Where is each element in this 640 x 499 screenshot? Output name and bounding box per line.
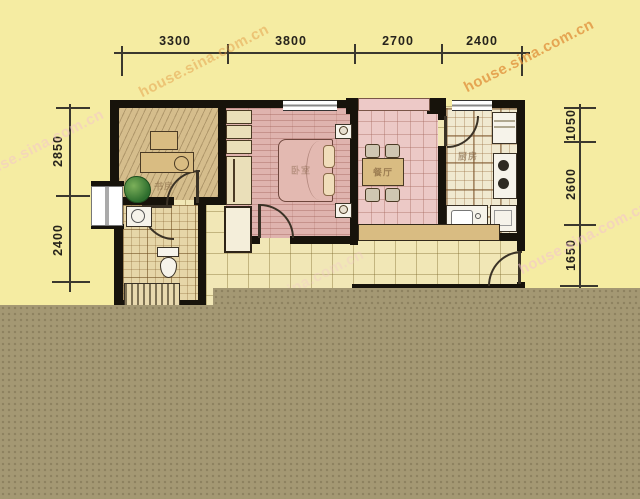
room-label-study: 书房	[154, 180, 174, 193]
watermark: house.sina.com.cn	[0, 106, 107, 186]
shelf	[226, 140, 252, 154]
stove-burner	[498, 160, 509, 171]
watermark: house.sina.com.cn	[461, 16, 597, 96]
left-bay-window	[91, 186, 123, 226]
wardrobe	[226, 156, 252, 205]
dimension-label-top-1: 3300	[159, 34, 191, 48]
bedroom-window	[283, 100, 337, 111]
kitchen-door-leaf	[444, 116, 447, 146]
wall	[218, 100, 226, 204]
shelf	[226, 110, 252, 124]
wall	[350, 100, 358, 245]
dimension-tick	[560, 285, 598, 287]
dining-chair	[385, 144, 400, 158]
sideboard	[358, 224, 500, 241]
wall	[198, 205, 206, 306]
dimension-tick	[564, 141, 596, 143]
wardrobe-handle	[233, 159, 235, 202]
dimension-tick	[354, 44, 356, 64]
hall-cabinet	[224, 206, 252, 253]
study-door-leaf	[196, 170, 199, 203]
stove-burner	[498, 178, 509, 189]
room-label-dining: 餐厅	[373, 166, 393, 179]
pillow	[323, 145, 335, 168]
kitchen-window	[452, 100, 492, 111]
dimension-tick	[52, 281, 90, 283]
bedroom-door-leaf	[258, 204, 261, 238]
wall	[517, 100, 525, 251]
fridge-line	[494, 126, 515, 128]
top-dimension-line	[114, 52, 530, 54]
dimension-tick	[56, 195, 90, 197]
bath-mat	[124, 283, 180, 306]
study-cabinet	[150, 131, 178, 150]
dimension-label-top-4: 2400	[466, 34, 498, 48]
lamp	[339, 205, 348, 214]
faucet	[475, 213, 481, 219]
wall	[110, 100, 284, 108]
watermark: house.sina.com.cn	[136, 21, 272, 101]
dining-chair	[365, 144, 380, 158]
plant	[124, 176, 151, 203]
dimension-tick	[121, 46, 123, 76]
dining-chair	[365, 188, 380, 202]
dimension-label-right-2: 2600	[564, 168, 578, 200]
room-label-bedroom: 卧室	[291, 164, 311, 177]
dimension-label-right-1: 1050	[564, 109, 578, 141]
fridge	[492, 112, 517, 144]
dimension-label-left-2: 2400	[51, 224, 65, 256]
pillow	[323, 173, 335, 196]
dining-bay-window	[358, 98, 430, 111]
censor-band-lower	[0, 305, 640, 499]
dining-chair	[385, 188, 400, 202]
room-label-kitchen: 厨房	[458, 150, 478, 163]
dimension-label-top-3: 2700	[382, 34, 414, 48]
shelf	[226, 125, 252, 139]
fridge-line	[494, 120, 515, 122]
dimension-label-top-2: 3800	[275, 34, 307, 48]
floor-plan-image: house.sina.com.cn house.sina.com.cn hous…	[0, 0, 640, 499]
wall	[114, 229, 123, 308]
lamp	[339, 126, 348, 135]
dimension-tick	[56, 107, 90, 109]
right-dimension-line	[579, 104, 581, 292]
dimension-tick	[441, 44, 443, 64]
wall	[110, 100, 119, 185]
sink-basin	[131, 209, 145, 223]
wall	[290, 236, 358, 244]
toilet-tank	[157, 247, 179, 257]
desk-chair	[174, 156, 189, 171]
